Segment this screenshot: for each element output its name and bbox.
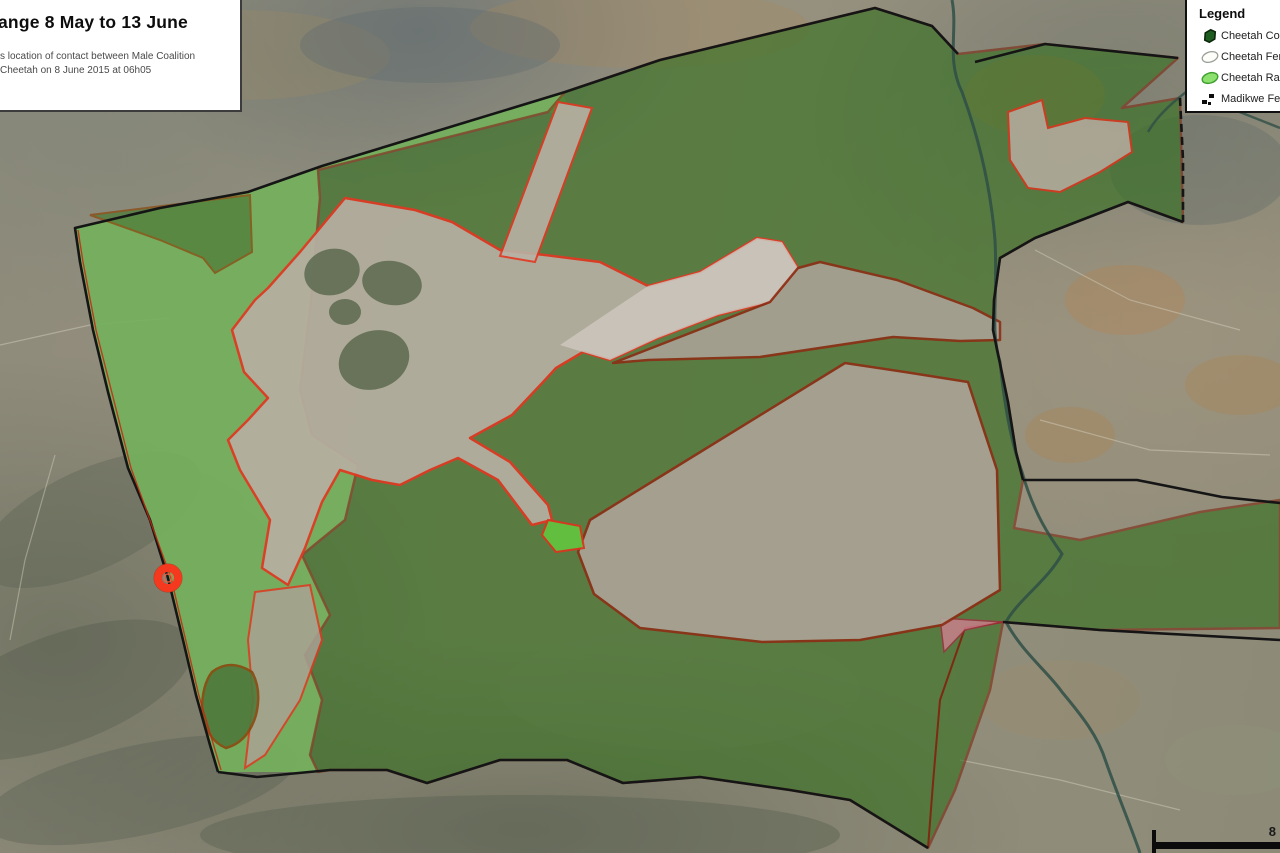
map-subtitle-line1: s location of contact between Male Coali…	[0, 50, 240, 64]
legend: Legend Cheetah Coa Cheetah Fem Cheetah R…	[1185, 0, 1280, 113]
legend-item-label: Cheetah Fem	[1221, 51, 1280, 63]
black-dashed-line-icon	[1199, 91, 1221, 107]
scale-bar-line	[1152, 842, 1280, 849]
legend-item-female: Cheetah Fem	[1199, 46, 1280, 67]
legend-item-range: Cheetah Ran	[1199, 67, 1280, 88]
legend-item-coalition: Cheetah Coa	[1199, 25, 1280, 46]
scale-bar: 8	[1150, 826, 1280, 853]
white-ellipse-icon	[1199, 49, 1221, 65]
map-canvas[interactable]	[0, 0, 1280, 853]
legend-item-label: Cheetah Ran	[1221, 72, 1280, 84]
legend-item-fence: Madikwe Fen	[1199, 88, 1280, 109]
title-box: ange 8 May to 13 June s location of cont…	[0, 0, 242, 112]
legend-item-label: Cheetah Coa	[1221, 30, 1280, 42]
map-screen: ange 8 May to 13 June s location of cont…	[0, 0, 1280, 853]
legend-item-label: Madikwe Fen	[1221, 93, 1280, 105]
map-subtitle-line2: Cheetah on 8 June 2015 at 06h05	[0, 64, 240, 78]
light-green-ellipse-icon	[1199, 70, 1221, 86]
legend-title: Legend	[1199, 6, 1280, 21]
map-title: ange 8 May to 13 June	[0, 12, 240, 33]
dark-green-polygon-icon	[1199, 28, 1221, 44]
scale-bar-label: 8	[1269, 824, 1276, 839]
